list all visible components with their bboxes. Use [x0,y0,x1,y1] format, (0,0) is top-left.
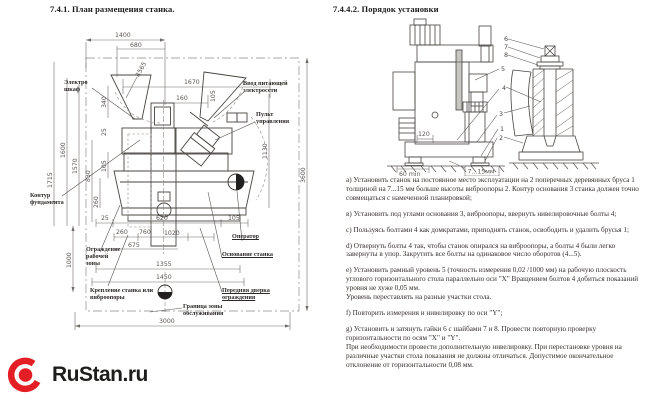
dim-3600: 3600 [300,167,307,183]
dim-25-left: 25 [101,128,108,136]
dim-1400: 1400 [115,32,131,39]
step-b: в) Установить под углами основания 3, ви… [346,210,646,219]
callout-leaders [457,39,544,161]
step-d: d) Отвернуть болты 4 так, чтобы станок о… [346,242,646,260]
label-foundation-contour: Контур фундамента [30,192,64,206]
bolt-detail [511,46,583,160]
dim-1715: 1715 [47,172,54,188]
dim-25-bottom: 25 [101,215,109,222]
dim-1000: 1000 [66,252,73,268]
rustan-logo[interactable]: RuStan.ru [6,355,148,395]
dim-675: 675 [128,242,140,249]
document-page: 7.4.1. План размещения станка. 7.4.4.2. … [0,0,651,400]
label-control-panel: Пульт управления [256,111,289,125]
dim-3000: 3000 [159,318,175,325]
placement-plan-svg: 1400 680 R565 1670 160 105 340 25 105 26… [18,22,318,344]
label-front-guard-door: Передняя дверка ограждения [222,287,270,301]
installation-instructions: а) Установить станок на постоянное место… [346,176,646,376]
dim-1670: 1670 [184,79,200,86]
label-work-zone-guard: Ограждение рабочей зоны [86,246,120,267]
installation-svg: 120 60 min 7...15мм [387,16,649,176]
dim-1450: 1450 [156,274,172,281]
dim-340: 340 [101,96,108,108]
callout-3: 3 [499,110,503,118]
right-section-title: 7.4.4.2. Порядок установки [333,4,439,14]
step-f: f) Повторить измерения и нивелировку по … [346,309,646,318]
dim-680: 680 [130,42,142,49]
callout-6: 6 [504,35,508,43]
rustan-logo-text: RuStan.ru [52,363,148,387]
label-electro-cabinet: Электро шкаф [64,79,88,93]
callout-7: 7 [504,43,508,51]
left-section-title: 7.4.1. План размещения станка. [50,4,175,14]
dim-1355: 1355 [156,261,172,268]
dim-1570: 1570 [72,158,79,174]
label-machine-mounting: Крепление станка или виброопоры [90,287,153,301]
label-service-zone: Граница зоны обслуживания [183,303,223,317]
callout-4: 4 [502,84,506,92]
label-operator: Оператор [232,233,259,240]
dim-1020: 1020 [164,230,180,237]
dim-620: 620 [156,215,168,222]
dim-120: 120 [418,131,430,138]
dim-105-bottom: 105 [228,215,240,222]
dim-1600: 1600 [60,142,67,158]
rustan-logo-icon [6,355,46,395]
callout-1: 1 [500,125,504,133]
dim-r565: R565 [134,61,148,79]
label-machine-base: Основание станка [222,251,273,258]
step-e: е) Установить рамный уровень 5 (точность… [346,266,646,302]
callout-2: 2 [499,134,503,142]
dim-760: 760 [139,229,151,236]
step-a: а) Установить станок на постоянное место… [346,176,646,203]
callout-8: 8 [504,51,508,59]
dim-gap-7-15: 7...15мм [468,169,495,176]
dim-830: 830 [85,170,92,182]
dim-160: 160 [176,95,188,102]
dim-260-left: 260 [93,196,100,208]
callout-5: 5 [501,65,505,73]
step-g: g) Установить и затянуть гайки 6 с шайба… [346,325,646,370]
dim-105-left: 105 [101,160,108,172]
step-c: с) Пользуясь болтами 4 как домкратами, п… [346,226,646,235]
label-power-input: Ввод питающей электросети [243,80,288,94]
dim-260-center: 260 [116,229,128,236]
dim-105-right: 105 [210,90,217,102]
dim-1130: 1130 [262,143,269,159]
